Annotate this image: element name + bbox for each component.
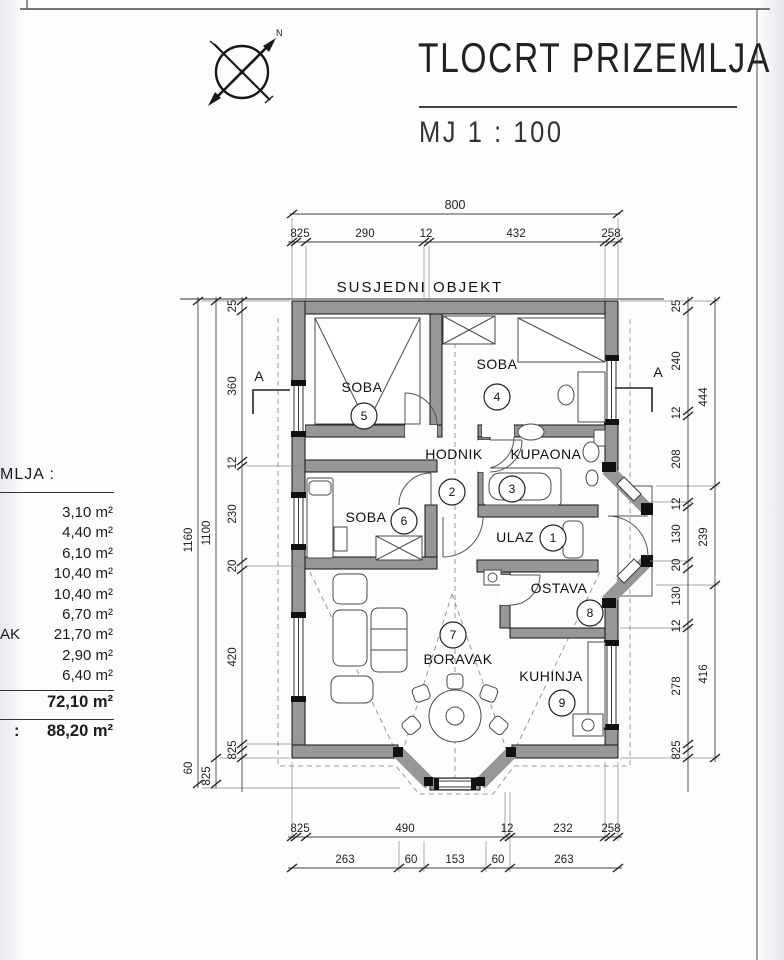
dim: 258 <box>601 823 620 835</box>
room-label-kupaona: KUPAONA <box>511 446 582 462</box>
section-letter-left: A <box>254 368 264 384</box>
area-row: 6,40 m² <box>0 667 118 687</box>
subtotal-row: 72,10 m² <box>0 693 118 717</box>
dim: 25 <box>227 300 239 313</box>
bidet <box>586 470 598 486</box>
dim: 20 <box>671 559 683 572</box>
boiler-icon <box>484 570 501 585</box>
room-label-soba4: SOBA <box>477 356 518 372</box>
sheet-border <box>20 0 770 960</box>
dim: 825 <box>290 823 309 835</box>
dim: 360 <box>227 376 239 395</box>
title-underline <box>419 106 737 108</box>
room-num-kupaona: 3 <box>509 482 516 496</box>
dim: 420 <box>227 647 239 666</box>
area-row: 3,10 m² <box>0 504 118 524</box>
dim: 290 <box>355 228 374 240</box>
wardrobe-icon <box>443 316 495 344</box>
area-row: 10,40 m² <box>0 586 118 606</box>
total-row: :88,20 m² <box>0 722 118 746</box>
dim: 416 <box>698 664 710 683</box>
dim: 232 <box>553 823 572 835</box>
dim: 60 <box>183 762 195 775</box>
dim: 239 <box>698 527 710 546</box>
armchair <box>333 574 367 604</box>
sofa-1 <box>333 610 367 666</box>
dim: 278 <box>671 676 683 695</box>
drawing-scale: MJ 1 : 100 <box>419 116 564 150</box>
dim: 263 <box>554 854 573 866</box>
dim: 444 <box>698 387 710 407</box>
area-row: 2,90 m² <box>0 647 118 667</box>
floor-plan-sheet: { "title_block": { "title": "TLOCRT PRIZ… <box>0 0 784 960</box>
neighbor-label: SUSJEDNI OBJEKT <box>337 279 504 296</box>
room-label-ulaz: ULAZ <box>496 529 534 545</box>
dim: 12 <box>671 407 683 420</box>
dim: 825 <box>671 740 683 759</box>
room-label-hodnik: HODNIK <box>425 446 483 462</box>
dim: 20 <box>227 560 239 573</box>
area-table-header: MLJA : <box>0 466 118 490</box>
dim: 230 <box>227 504 239 523</box>
dim: 825 <box>201 766 213 785</box>
dim: 432 <box>506 228 525 240</box>
dim: 12 <box>420 228 433 240</box>
bed-soba4 <box>518 318 605 362</box>
table-rule <box>0 719 114 720</box>
dimension-texts: 800 825 290 12 432 258 825 490 12 232 25… <box>183 198 710 866</box>
compass-icon: N <box>208 28 283 106</box>
sofa-2 <box>371 608 407 672</box>
kitchen-sink <box>573 714 603 736</box>
dim: 60 <box>492 854 505 866</box>
dim: 12 <box>671 620 683 633</box>
dim: 258 <box>601 228 620 240</box>
room-label-ostava: OSTAVA <box>531 580 588 596</box>
room-label-kuhinja: KUHINJA <box>519 668 583 684</box>
room-label-soba6: SOBA <box>346 509 387 525</box>
dim: 240 <box>671 351 683 370</box>
bed-soba6 <box>307 478 333 558</box>
dim: 12 <box>501 823 514 835</box>
room-num-kuhinja: 9 <box>559 696 566 710</box>
room-num-boravak: 7 <box>450 628 457 642</box>
dim: 130 <box>671 524 683 543</box>
dim: 12 <box>227 457 239 470</box>
drawing-title: TLOCRT PRIZEMLJA <box>418 34 771 82</box>
chair-soba4 <box>558 385 574 405</box>
dim: 130 <box>671 586 683 605</box>
room-num-soba6: 6 <box>401 514 408 528</box>
room-label-soba5: SOBA <box>342 379 383 395</box>
table-rule <box>0 690 114 691</box>
room-num-ostava: 8 <box>587 606 594 620</box>
compass-north-label: N <box>276 28 283 38</box>
section-letter-right: A <box>653 364 663 380</box>
dim: 263 <box>335 854 354 866</box>
room-num-hodnik: 2 <box>449 485 456 499</box>
area-row: 4,40 m² <box>0 524 118 544</box>
room-num-ulaz: 1 <box>550 531 557 545</box>
area-rows: 3,10 m² 4,40 m² 6,10 m² 10,40 m² 10,40 m… <box>0 504 118 688</box>
dim: 825 <box>227 740 239 759</box>
dim: 60 <box>405 854 418 866</box>
area-row: 6,10 m² <box>0 545 118 565</box>
washbasin <box>518 424 544 440</box>
desk-soba4 <box>578 372 605 422</box>
dim: 153 <box>445 854 464 866</box>
room-num-soba5: 5 <box>361 409 368 423</box>
room-label-boravak: BORAVAK <box>423 651 492 667</box>
dim-top-total: 800 <box>445 198 466 212</box>
dim: 208 <box>671 449 683 468</box>
dim: 825 <box>290 228 309 240</box>
area-row: 6,70 m² <box>0 606 118 626</box>
dim: 490 <box>395 823 414 835</box>
coffee-table <box>331 676 373 703</box>
dim: 25 <box>671 300 683 313</box>
area-table: MLJA : 3,10 m² 4,40 m² 6,10 m² 10,40 m² … <box>0 466 118 746</box>
dim: 12 <box>671 498 683 511</box>
desk-soba6 <box>334 527 347 551</box>
dim: 1160 <box>183 528 195 553</box>
room-num-soba4: 4 <box>494 390 501 404</box>
wardrobe-soba6 <box>376 536 422 560</box>
table-rule <box>0 492 114 493</box>
area-row: 10,40 m² <box>0 565 118 585</box>
area-row: AK21,70 m² <box>0 626 118 646</box>
dim: 1100 <box>201 521 213 546</box>
